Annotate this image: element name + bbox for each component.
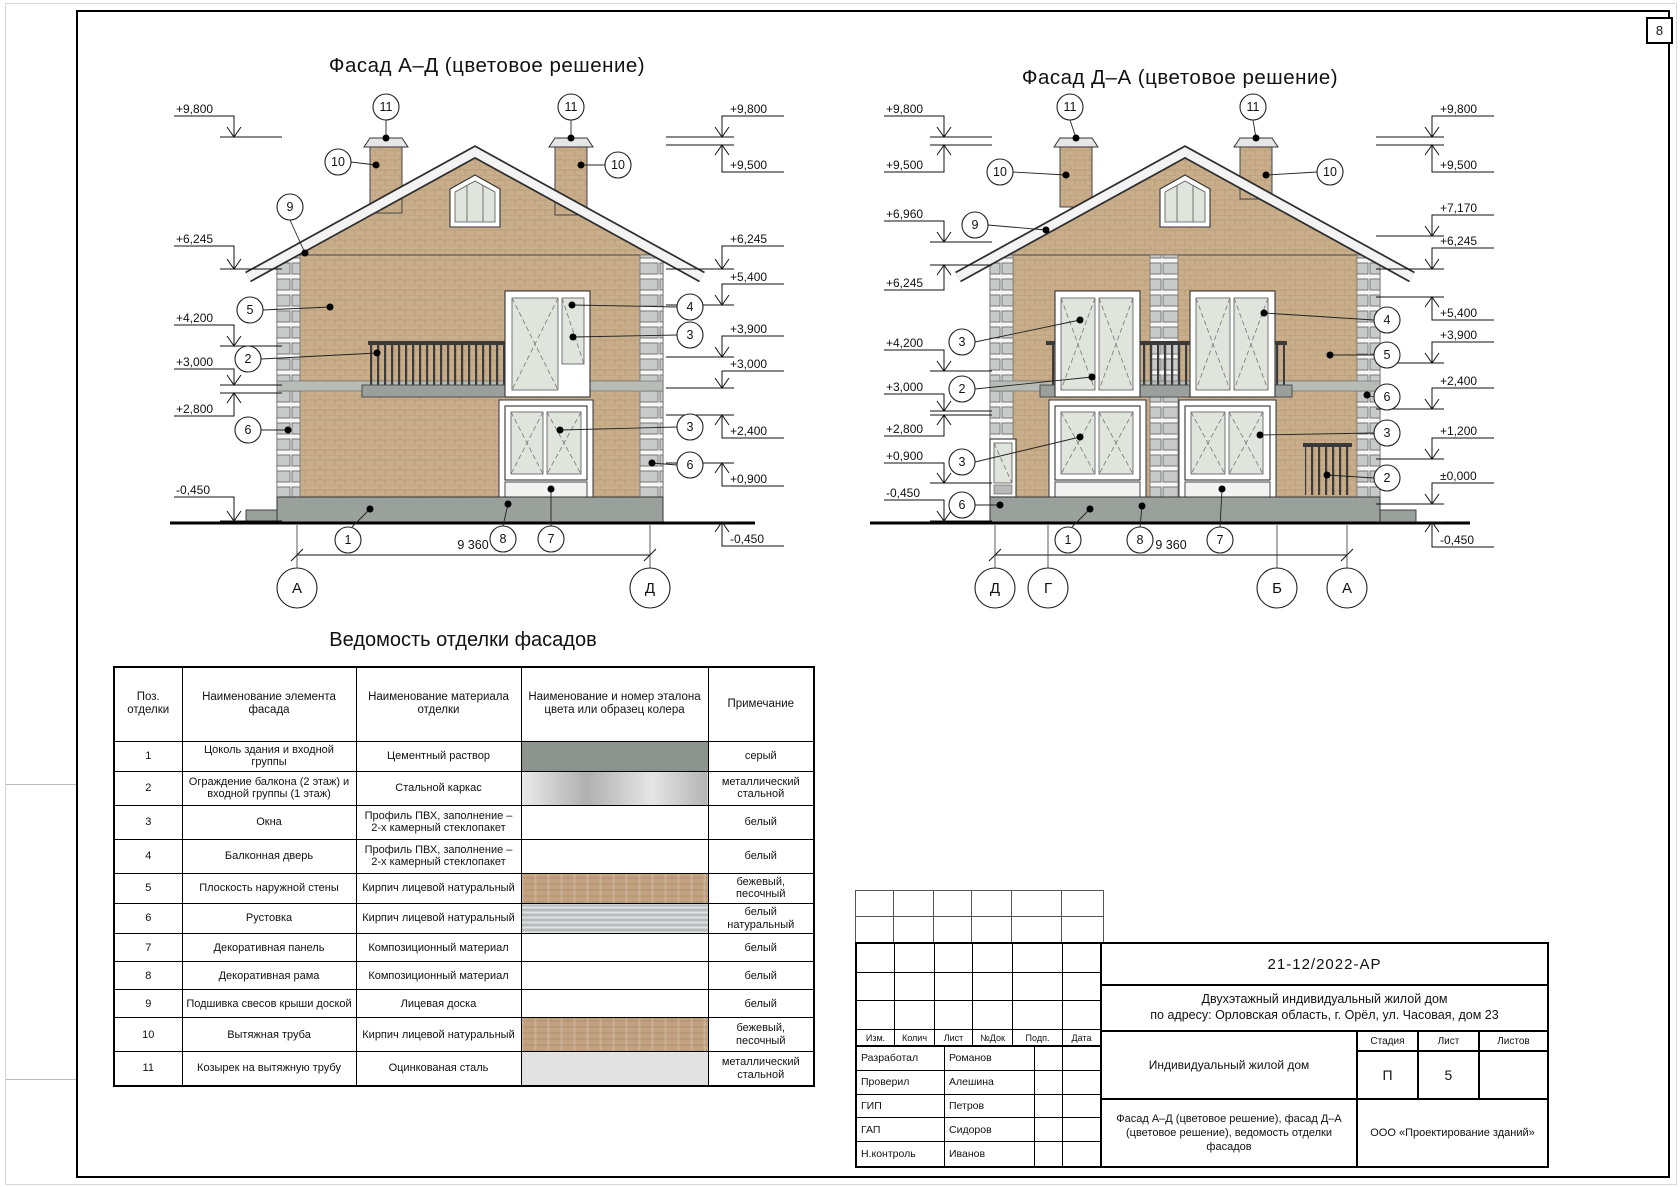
- sheet-label: Лист: [1419, 1032, 1480, 1051]
- drawing-sheet: 8 Фасад А–Д (цветовое решение) Фасад Д–А…: [0, 0, 1680, 1187]
- mark-value: +1,200: [1440, 424, 1477, 438]
- elevation-mark: -0,450: [1376, 522, 1494, 547]
- elevation-mark: +9,800: [884, 102, 992, 137]
- svg-text:10: 10: [331, 155, 345, 169]
- first-floor-window: [1049, 400, 1146, 503]
- svg-text:9 360: 9 360: [1155, 538, 1186, 552]
- axis-a: А: [277, 525, 317, 608]
- col-header: Наименование элемента фасада: [182, 667, 356, 741]
- table-row: 1Цоколь здания и входной группыЦементный…: [114, 741, 814, 771]
- plinth: [990, 497, 1416, 522]
- mark-value: +9,800: [1440, 102, 1477, 116]
- stage-label: Стадия: [1358, 1032, 1419, 1051]
- facade-a-d-drawing: +9,800 +6,245 +4,200 +3,000 +2,800 -0,45…: [130, 85, 790, 630]
- svg-text:10: 10: [993, 165, 1007, 179]
- mark-value: +9,800: [886, 102, 923, 116]
- margin-divider: [6, 784, 76, 785]
- plinth: [246, 497, 663, 522]
- mark-value: +6,960: [886, 207, 923, 221]
- facade-d-a-drawing: +9,800 +9,500 +6,960 +6,245 +4,200 +3,00…: [840, 85, 1500, 630]
- svg-text:5: 5: [247, 303, 254, 317]
- callout-11: 11: [1057, 94, 1083, 142]
- svg-text:4: 4: [1384, 313, 1391, 327]
- revision-grid-upper: [855, 890, 1104, 944]
- dimension-9360: 9 360: [989, 538, 1353, 561]
- signature-row: ГИППетров: [857, 1095, 1100, 1119]
- svg-text:7: 7: [548, 532, 555, 546]
- svg-text:7: 7: [1217, 533, 1224, 547]
- table-row: 9Подшивка свесов крыши доскойЛицевая дос…: [114, 990, 814, 1018]
- signature-row: Н.контрольИванов: [857, 1142, 1100, 1166]
- title-block: Изм. Колич Лист №Док Подп. Дата Разработ…: [855, 942, 1549, 1168]
- svg-text:6: 6: [959, 498, 966, 512]
- title-block-left: Изм. Колич Лист №Док Подп. Дата Разработ…: [857, 944, 1102, 1166]
- decorative-panel: [505, 482, 587, 497]
- svg-text:1: 1: [345, 533, 352, 547]
- elevation-mark: +9,500: [884, 145, 992, 172]
- company-name: ООО «Проектирование зданий»: [1358, 1100, 1547, 1166]
- signature-row: РазработалРоманов: [857, 1047, 1100, 1071]
- finish-table: Поз. отделки Наименование элемента фасад…: [113, 666, 815, 1087]
- quoin-right: [1357, 255, 1380, 497]
- svg-text:9 360: 9 360: [457, 538, 488, 552]
- entry-steps: [246, 510, 277, 522]
- col-header: Примечание: [708, 667, 814, 741]
- color-swatch: [521, 1052, 708, 1086]
- callout-11: 11: [558, 94, 584, 142]
- first-floor-window: [499, 400, 593, 503]
- facade-left-title: Фасад А–Д (цветовое решение): [277, 54, 697, 78]
- svg-text:3: 3: [687, 420, 694, 434]
- mark-value: +3,000: [730, 357, 767, 371]
- svg-text:9: 9: [287, 200, 294, 214]
- revision-columns-header: Изм. Колич Лист №Док Подп. Дата: [857, 1030, 1100, 1047]
- svg-text:2: 2: [245, 352, 252, 366]
- porch-railing: [1303, 443, 1352, 495]
- mark-value: +9,800: [176, 102, 213, 116]
- mark-value: -0,450: [176, 483, 210, 497]
- balcony-door-unit: [505, 291, 590, 397]
- document-number: 21-12/2022-АР: [1102, 944, 1547, 984]
- mark-value: +4,200: [176, 311, 213, 325]
- elevation-mark: +0,900: [884, 449, 992, 483]
- sheets-value: [1480, 1052, 1547, 1098]
- sheets-label: Листов: [1480, 1032, 1547, 1051]
- mark-value: +6,245: [1440, 234, 1477, 248]
- svg-text:А: А: [1342, 580, 1352, 597]
- mark-value: +6,245: [886, 276, 923, 290]
- svg-text:11: 11: [1247, 100, 1260, 114]
- object-name: Индивидуальный жилой дом: [1102, 1032, 1358, 1098]
- table-row: 2Ограждение балкона (2 этаж) и входной г…: [114, 771, 814, 805]
- color-swatch: [521, 962, 708, 990]
- svg-text:А: А: [292, 580, 302, 597]
- entry-steps: [1380, 510, 1416, 522]
- svg-text:4: 4: [687, 300, 694, 314]
- table-row: 4Балконная дверьПрофиль ПВХ, заполнение …: [114, 839, 814, 873]
- color-swatch: [521, 1018, 708, 1052]
- color-swatch: [521, 741, 708, 771]
- title-block-right: 21-12/2022-АР Двухэтажный индивидуальный…: [1102, 944, 1547, 1166]
- mark-value: +3,000: [176, 355, 213, 369]
- mark-value: +9,500: [730, 158, 767, 172]
- elevation-mark: +2,800: [884, 415, 992, 436]
- mark-value: +3,900: [1440, 328, 1477, 342]
- elevation-mark: +9,800: [1376, 102, 1494, 137]
- sheet-content: Фасад А–Д (цветовое решение), фасад Д–А …: [1102, 1100, 1358, 1166]
- svg-text:8: 8: [1137, 533, 1144, 547]
- first-floor-window: [1179, 400, 1276, 503]
- elevation-mark: +4,200: [884, 336, 992, 371]
- svg-text:2: 2: [959, 382, 966, 396]
- elevation-mark: +3,000: [666, 357, 784, 388]
- axis-d: Д: [630, 525, 670, 608]
- svg-text:1: 1: [1065, 533, 1072, 547]
- table-row: 11Козырек на вытяжную трубуОцинкованая с…: [114, 1052, 814, 1086]
- svg-text:9: 9: [972, 218, 979, 232]
- elevation-mark: +3,000: [174, 355, 282, 385]
- mark-value: +2,800: [886, 422, 923, 436]
- mark-value: -0,450: [886, 486, 920, 500]
- mark-value: +6,245: [176, 232, 213, 246]
- finish-table-header: Поз. отделки Наименование элемента фасад…: [114, 667, 814, 741]
- svg-text:6: 6: [1384, 390, 1391, 404]
- balcony-door-unit: [1055, 291, 1140, 397]
- svg-text:11: 11: [1064, 100, 1077, 114]
- mark-value: +2,800: [176, 402, 213, 416]
- elevation-mark: -0,450: [884, 486, 992, 521]
- table-row: 7Декоративная панельКомпозиционный матер…: [114, 934, 814, 962]
- svg-text:3: 3: [1384, 426, 1391, 440]
- mark-value: +7,170: [1440, 201, 1477, 215]
- elevation-mark: +9,800: [666, 102, 784, 137]
- balcony: [362, 341, 522, 397]
- svg-text:3: 3: [959, 335, 966, 349]
- decorative-panel: [1185, 482, 1270, 497]
- sheet-value: 5: [1419, 1052, 1480, 1098]
- svg-text:3: 3: [959, 455, 966, 469]
- callout-11: 11: [373, 94, 399, 142]
- mark-value: +3,000: [886, 380, 923, 394]
- svg-text:8: 8: [500, 532, 507, 546]
- decorative-panel: [1055, 482, 1140, 497]
- mark-value: +9,800: [730, 102, 767, 116]
- svg-text:11: 11: [565, 100, 578, 114]
- svg-text:6: 6: [245, 423, 252, 437]
- axis-a: А: [1327, 525, 1367, 608]
- axis-d: Д: [975, 525, 1015, 608]
- svg-text:10: 10: [1323, 165, 1337, 179]
- balcony-door-unit: [1190, 291, 1275, 397]
- quoin-left: [277, 255, 300, 497]
- revision-grid: [857, 944, 1100, 1030]
- finish-table-title: Ведомость отделки фасадов: [113, 629, 813, 652]
- stage-block: Стадия Лист Листов П 5: [1358, 1032, 1547, 1098]
- mark-value: +9,500: [886, 158, 923, 172]
- axis-b: Б: [1257, 525, 1297, 608]
- callout-11: 11: [1240, 94, 1266, 142]
- stage-value: П: [1358, 1052, 1419, 1098]
- mark-value: -0,450: [1440, 533, 1474, 547]
- table-row: 3ОкнаПрофиль ПВХ, заполнение – 2-х камер…: [114, 805, 814, 839]
- elevation-mark: -0,450: [666, 522, 784, 546]
- margin-divider: [6, 1079, 76, 1080]
- elevation-mark: +9,500: [1376, 145, 1494, 172]
- color-swatch: [521, 904, 708, 934]
- svg-text:5: 5: [1384, 348, 1391, 362]
- svg-text:3: 3: [687, 328, 694, 342]
- svg-text:6: 6: [687, 458, 694, 472]
- color-swatch: [521, 934, 708, 962]
- table-row: 6РустовкаКирпич лицевой натуральныйбелый…: [114, 904, 814, 934]
- callout-10: 10: [1263, 159, 1344, 185]
- elevation-mark: +4,200: [174, 311, 282, 346]
- svg-text:Д: Д: [645, 580, 655, 597]
- table-row: 10Вытяжная трубаКирпич лицевой натуральн…: [114, 1018, 814, 1052]
- mark-value: +5,400: [730, 270, 767, 284]
- sheet-number: 8: [1656, 23, 1663, 38]
- mark-value: +2,400: [1440, 374, 1477, 388]
- color-swatch: [521, 990, 708, 1018]
- sheet-number-box: 8: [1646, 17, 1673, 44]
- col-header: Поз. отделки: [114, 667, 182, 741]
- elevation-mark: +2,800: [174, 393, 282, 416]
- color-swatch: [521, 839, 708, 873]
- col-header: Наименование и номер эталона цвета или о…: [521, 667, 708, 741]
- svg-text:2: 2: [1384, 471, 1391, 485]
- elevation-mark: +7,170: [1376, 201, 1494, 236]
- elevation-mark: +9,500: [666, 145, 784, 172]
- entry-door: [990, 439, 1016, 497]
- mark-value: +6,245: [730, 232, 767, 246]
- table-row: 5Плоскость наружной стеныКирпич лицевой …: [114, 873, 814, 903]
- project-name: Двухэтажный индивидуальный жилой дом по …: [1102, 984, 1547, 1030]
- svg-text:Б: Б: [1272, 580, 1282, 597]
- elevation-mark: +9,800: [174, 102, 282, 137]
- mark-value: -0,450: [730, 532, 764, 546]
- signature-rows: РазработалРоманов ПроверилАлешина ГИППет…: [857, 1047, 1100, 1166]
- mark-value: +2,400: [730, 424, 767, 438]
- svg-text:Д: Д: [990, 580, 1000, 597]
- mark-value: +0,900: [886, 449, 923, 463]
- mark-value: +9,500: [1440, 158, 1477, 172]
- signature-row: ПроверилАлешина: [857, 1071, 1100, 1095]
- mark-value: ±0,000: [1440, 469, 1477, 483]
- color-swatch: [521, 873, 708, 903]
- color-swatch: [521, 805, 708, 839]
- svg-text:10: 10: [611, 158, 625, 172]
- mark-value: +3,900: [730, 322, 767, 336]
- svg-text:Г: Г: [1044, 580, 1052, 597]
- mark-value: +5,400: [1440, 306, 1477, 320]
- col-header: Наименование материала отделки: [356, 667, 521, 741]
- svg-text:11: 11: [380, 100, 393, 114]
- elevation-mark: +3,000: [884, 380, 992, 411]
- table-row: 8Декоративная рамаКомпозиционный материа…: [114, 962, 814, 990]
- callout-10: 10: [987, 159, 1070, 185]
- signature-row: ГАПСидоров: [857, 1118, 1100, 1142]
- mark-value: +4,200: [886, 336, 923, 350]
- mark-value: +0,900: [730, 472, 767, 486]
- color-swatch: [521, 771, 708, 805]
